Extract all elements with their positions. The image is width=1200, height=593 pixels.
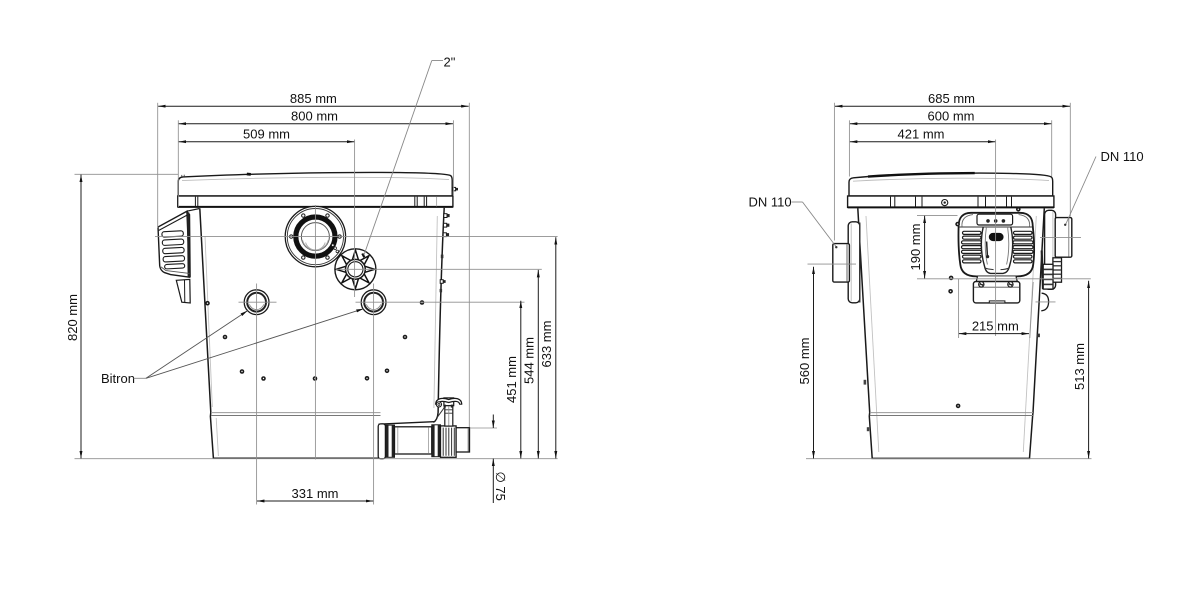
svg-text:DN 110: DN 110	[749, 195, 792, 210]
svg-text:633 mm: 633 mm	[539, 321, 554, 368]
svg-text:∅ 75: ∅ 75	[493, 471, 508, 500]
svg-text:DN 110: DN 110	[1101, 149, 1144, 164]
svg-text:451 mm: 451 mm	[504, 356, 519, 403]
svg-text:560 mm: 560 mm	[797, 338, 812, 385]
svg-text:OASE: OASE	[990, 235, 1003, 240]
svg-text:215 mm: 215 mm	[972, 318, 1019, 333]
svg-text:190 mm: 190 mm	[908, 224, 923, 271]
svg-text:2": 2"	[444, 55, 456, 70]
svg-text:544 mm: 544 mm	[522, 337, 537, 384]
svg-text:331 mm: 331 mm	[292, 486, 339, 501]
svg-text:820 mm: 820 mm	[65, 294, 80, 341]
svg-text:885 mm: 885 mm	[290, 91, 337, 106]
svg-text:Bitron: Bitron	[101, 371, 135, 386]
svg-text:600 mm: 600 mm	[928, 109, 975, 124]
svg-text:509 mm: 509 mm	[243, 127, 290, 142]
svg-text:685 mm: 685 mm	[928, 91, 975, 106]
svg-text:513 mm: 513 mm	[1072, 343, 1087, 390]
svg-text:421 mm: 421 mm	[898, 127, 945, 142]
svg-text:800 mm: 800 mm	[291, 109, 338, 124]
